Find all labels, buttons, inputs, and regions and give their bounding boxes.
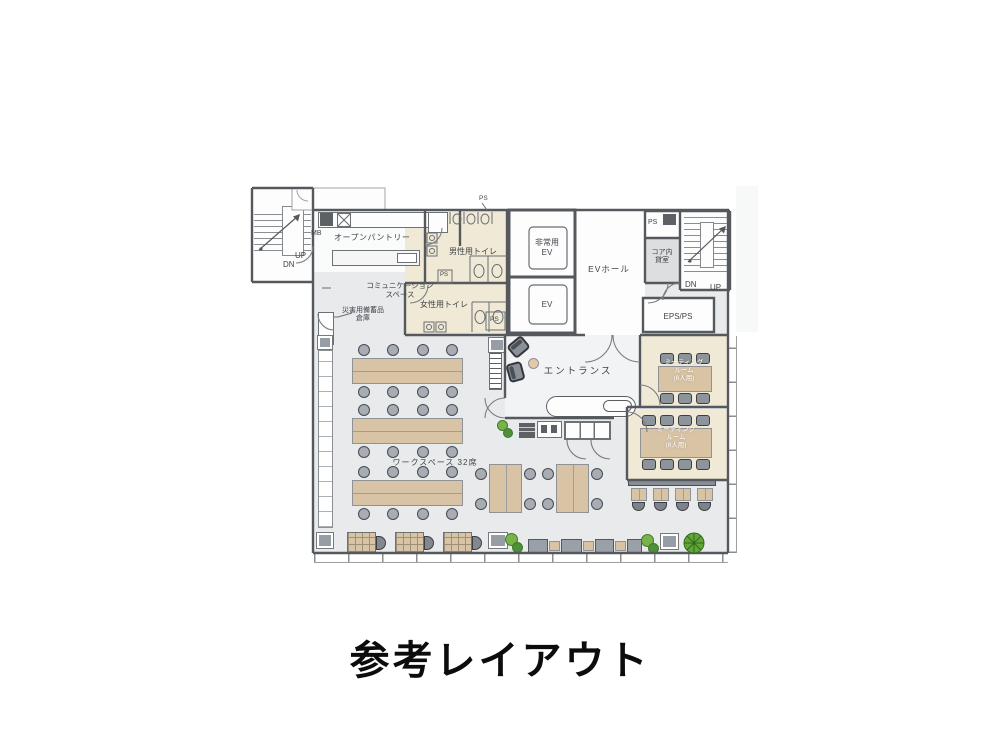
- chair-row: [358, 404, 458, 416]
- side-table: [528, 358, 539, 369]
- chair: [387, 404, 399, 416]
- reception-counter-inner: [603, 400, 632, 412]
- window-right: [729, 336, 737, 553]
- label-ps-women: PS: [490, 316, 499, 324]
- locker-cabinets: [318, 350, 333, 528]
- plant: [512, 542, 523, 553]
- bench-seat: [627, 539, 642, 553]
- stair-left-shaft: [282, 206, 304, 256]
- pantry-counter-step: [428, 212, 448, 233]
- chair-row: [358, 466, 458, 478]
- chair: [417, 344, 429, 356]
- focus-booth-panel: [628, 479, 716, 486]
- chair-row: [642, 459, 710, 470]
- chair: [417, 404, 429, 416]
- chair: [696, 415, 710, 426]
- chair: [660, 393, 674, 404]
- label-eps-ps: EPS/PS: [664, 312, 693, 322]
- chair: [524, 468, 536, 480]
- chair: [446, 446, 458, 458]
- pantry-table-inset: [397, 253, 417, 263]
- column: [661, 534, 678, 549]
- focus-booth-desk: [675, 488, 691, 501]
- workspace-table: [352, 480, 463, 506]
- workspace-table: [352, 418, 463, 444]
- bench-table: [549, 541, 560, 551]
- faucet: [541, 425, 547, 433]
- carrel-desk: [347, 532, 376, 553]
- stair-right-shaft: [700, 222, 714, 268]
- label-up-right: UP: [710, 283, 721, 293]
- chair: [446, 466, 458, 478]
- label-mens-toilet: 男性用トイレ: [449, 247, 497, 257]
- chair: [387, 344, 399, 356]
- chair-col: [524, 468, 536, 510]
- chair: [387, 386, 399, 398]
- pantry-refrigerator: [320, 213, 333, 226]
- chair: [446, 344, 458, 356]
- plant: [503, 428, 513, 438]
- label-womens-toilet: 女性用トイレ: [420, 300, 468, 310]
- label-communication-space: コミュニケーションスペース: [366, 281, 433, 299]
- chair: [678, 393, 692, 404]
- chair-row: [358, 446, 458, 458]
- chair: [387, 446, 399, 458]
- column: [317, 533, 333, 548]
- workspace-table: [352, 358, 463, 384]
- chair: [417, 386, 429, 398]
- workspace-table-4p: [489, 464, 522, 513]
- plant: [648, 543, 659, 554]
- chair: [358, 466, 370, 478]
- label-meeting-room-6: ミーティングルーム(6人用): [665, 359, 704, 382]
- chair: [358, 508, 370, 520]
- carrel-desk: [395, 532, 424, 553]
- floor-ev-shaft: [508, 210, 575, 333]
- chair: [591, 498, 603, 510]
- label-disaster-storage: 災害用備蓄品倉庫: [342, 307, 384, 324]
- chair: [358, 446, 370, 458]
- chair: [696, 393, 710, 404]
- chair: [678, 459, 692, 470]
- chair: [387, 466, 399, 478]
- label-meeting-room-8: ミーティングルーム(8人用): [657, 426, 696, 449]
- carrel-desk: [443, 532, 472, 553]
- chair: [678, 415, 692, 426]
- label-ps-top: PS: [479, 195, 488, 203]
- faucet: [551, 425, 557, 433]
- label-core-rental: コア内貸室: [652, 249, 673, 266]
- column: [318, 336, 332, 349]
- bench-seat: [561, 539, 582, 553]
- label-ps-topright: PS: [648, 219, 657, 227]
- chair-row: [642, 415, 710, 426]
- chair: [417, 446, 429, 458]
- chair: [642, 459, 656, 470]
- shelf-unit: [489, 352, 502, 390]
- bench-seat: [528, 539, 548, 553]
- floor-fade-right: [736, 186, 758, 332]
- label-dn-left: DN: [283, 260, 295, 270]
- floor-plan-page: MB オープンパントリー コミュニケーションスペース 災害用備蓄品倉庫 男性用ト…: [0, 0, 1000, 750]
- chair-row: [660, 393, 710, 404]
- chair: [542, 468, 554, 480]
- label-ev-hall: EVホール: [588, 264, 630, 274]
- focus-booth-desk: [697, 488, 713, 501]
- chair: [358, 344, 370, 356]
- label-entrance: エントランス: [544, 366, 613, 377]
- bench-table: [583, 541, 594, 551]
- label-ev: EV: [542, 300, 553, 310]
- chair: [696, 459, 710, 470]
- label-up-left: UP: [295, 251, 306, 261]
- chair-col: [591, 468, 603, 510]
- chair-col: [542, 468, 554, 510]
- chair-col: [475, 468, 487, 510]
- label-emergency-ev: 非常用EV: [535, 238, 559, 257]
- chair: [591, 468, 603, 480]
- focus-booth-desk: [631, 488, 647, 501]
- chair: [475, 498, 487, 510]
- focus-booth-desk: [653, 488, 669, 501]
- chair: [417, 466, 429, 478]
- chair: [660, 415, 674, 426]
- chair-row: [358, 344, 458, 356]
- label-workspace: ワークスペース 32席: [393, 458, 478, 468]
- bench-seat: [595, 539, 614, 553]
- chair: [446, 404, 458, 416]
- phone-booths: [564, 421, 611, 440]
- workspace-table-4p: [556, 464, 589, 513]
- chair: [660, 459, 674, 470]
- label-ps-nook: PS: [440, 272, 448, 279]
- chair-row: [358, 508, 458, 520]
- chair: [358, 404, 370, 416]
- chair-row: [358, 386, 458, 398]
- printer: [519, 423, 535, 438]
- column: [489, 338, 505, 352]
- chair: [524, 498, 536, 510]
- chair: [642, 415, 656, 426]
- bench-table: [615, 541, 626, 551]
- label-dn-right: DN: [685, 280, 697, 290]
- chair: [542, 498, 554, 510]
- chair: [387, 508, 399, 520]
- pantry-sink: [337, 213, 351, 227]
- chair: [446, 508, 458, 520]
- chair: [358, 386, 370, 398]
- window-bottom: [314, 554, 728, 563]
- page-caption: 参考レイアウト: [0, 628, 1000, 686]
- label-mb: MB: [311, 230, 322, 238]
- label-open-pantry: オープンパントリー: [334, 233, 410, 243]
- chair: [446, 386, 458, 398]
- chair: [475, 468, 487, 480]
- chair: [417, 508, 429, 520]
